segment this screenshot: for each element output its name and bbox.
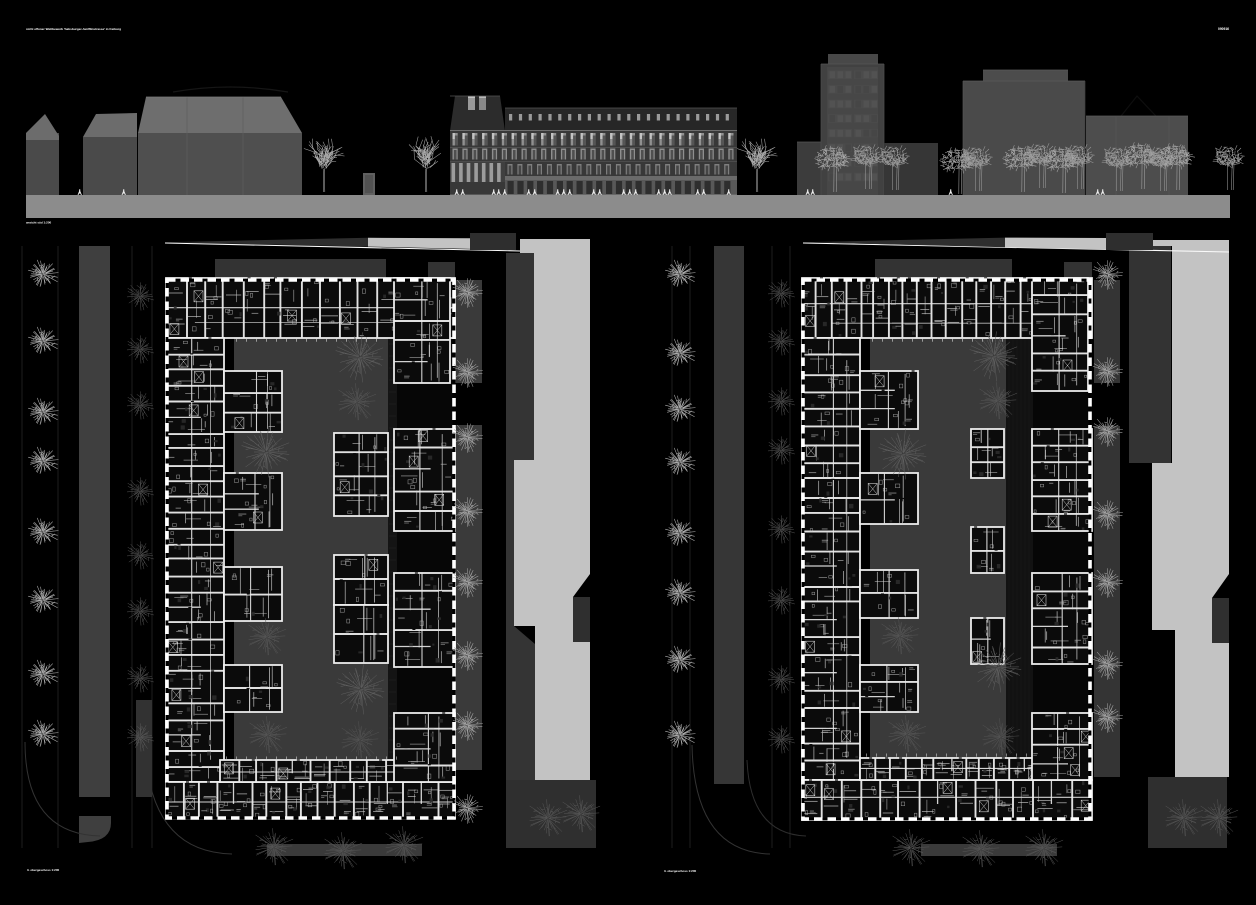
svg-text:3. obergeschoss 1:200: 3. obergeschoss 1:200: [27, 868, 60, 872]
svg-text:090916: 090916: [1218, 27, 1229, 31]
svg-text:3. obergeschoss 1:200: 3. obergeschoss 1:200: [664, 869, 697, 873]
svg-text:ansicht süd 1:200: ansicht süd 1:200: [26, 221, 52, 225]
svg-text:nicht offener Wettbewerb 'habs: nicht offener Wettbewerb 'habsburger-/wö…: [26, 27, 121, 31]
